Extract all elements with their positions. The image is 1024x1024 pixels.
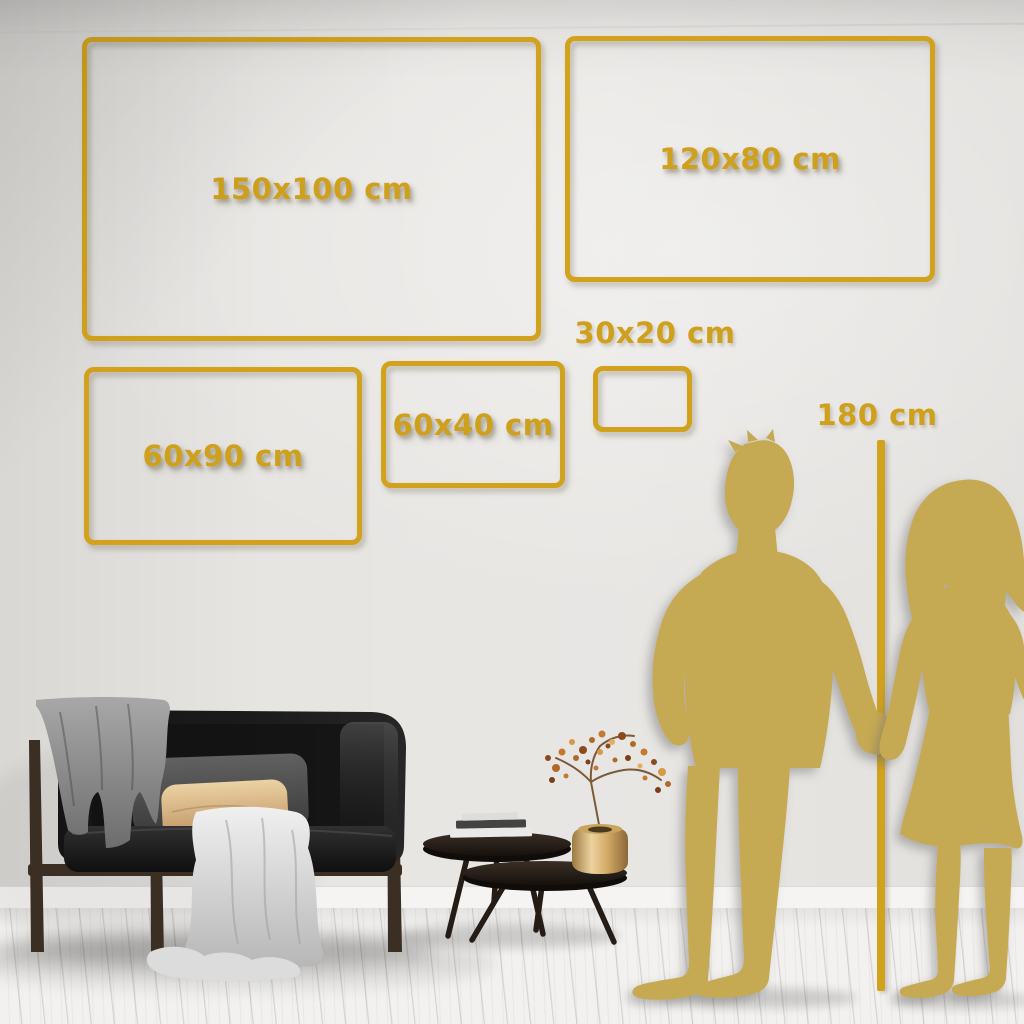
dried-branch: [545, 731, 671, 831]
books: [450, 812, 532, 837]
room-scene: [0, 0, 1024, 1024]
brass-vase: [572, 824, 628, 874]
woman-silhouette: [879, 480, 1024, 999]
wall-art-size-guide: 150x100 cm 120x80 cm 60x90 cm 60x40 cm 3…: [0, 0, 1024, 1024]
man-silhouette: [632, 429, 894, 1000]
